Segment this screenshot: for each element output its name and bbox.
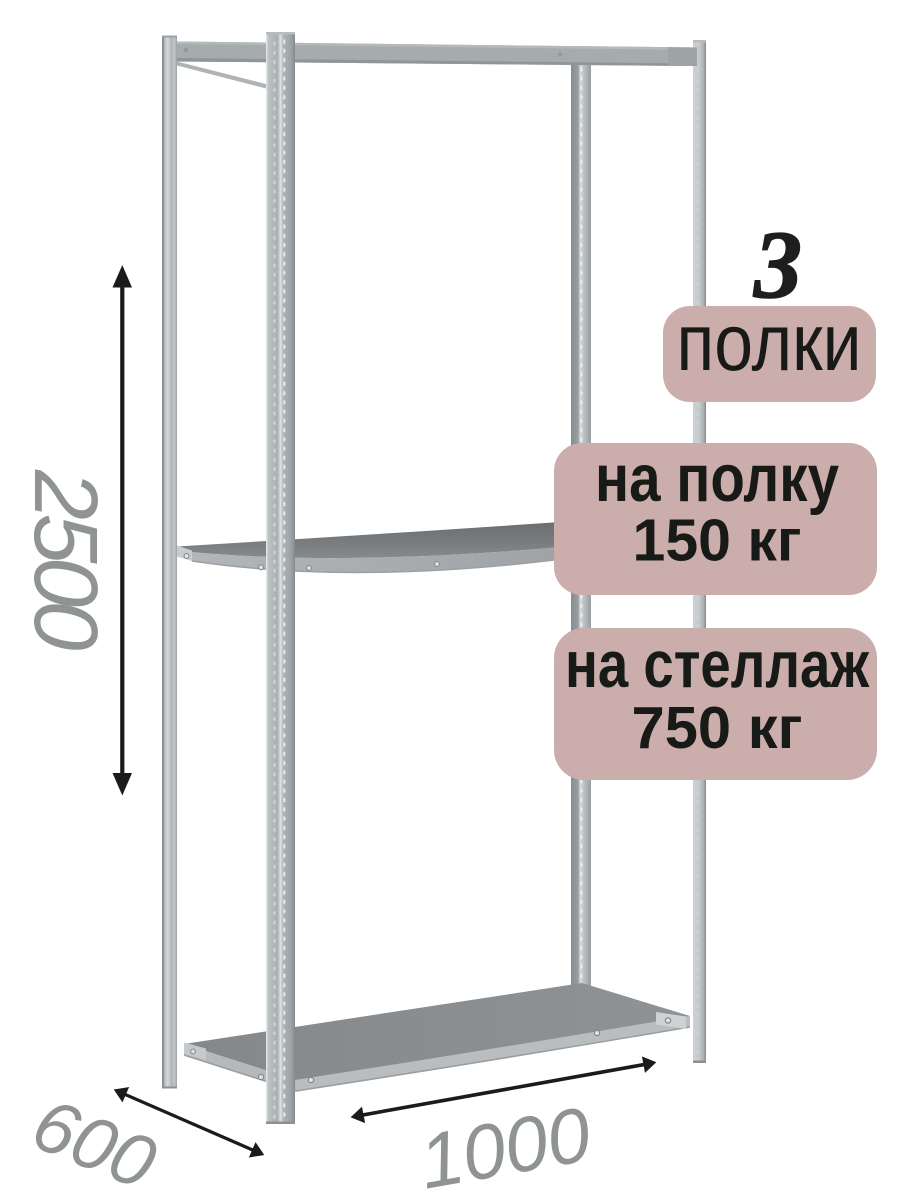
- svg-text:150 кг: 150 кг: [633, 508, 802, 574]
- svg-text:на полку: на полку: [595, 441, 839, 516]
- svg-text:750 кг: 750 кг: [632, 695, 803, 761]
- svg-text:полки: полки: [677, 298, 862, 388]
- svg-text:2500: 2500: [15, 469, 115, 651]
- svg-text:на стеллаж: на стеллаж: [565, 627, 870, 701]
